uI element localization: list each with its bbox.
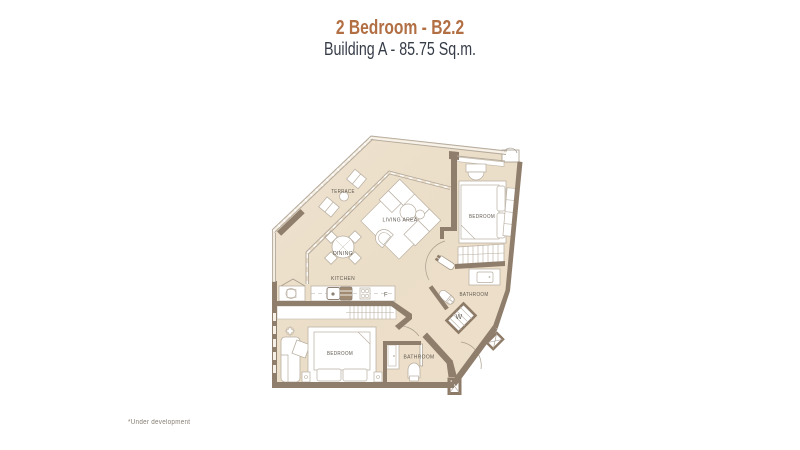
svg-text:BATHROOM: BATHROOM [460,292,489,298]
svg-text:BEDROOM: BEDROOM [327,351,353,357]
svg-text:DINING: DINING [333,251,353,257]
svg-text:KITCHEN: KITCHEN [331,276,355,282]
svg-text:W: W [455,314,462,321]
svg-text:LIVING AREA: LIVING AREA [383,218,418,224]
svg-text:TERRACE: TERRACE [331,189,355,195]
svg-text:F: F [384,293,388,299]
svg-text:BEDROOM: BEDROOM [469,214,495,220]
svg-text:BATHROOM: BATHROOM [404,355,435,361]
